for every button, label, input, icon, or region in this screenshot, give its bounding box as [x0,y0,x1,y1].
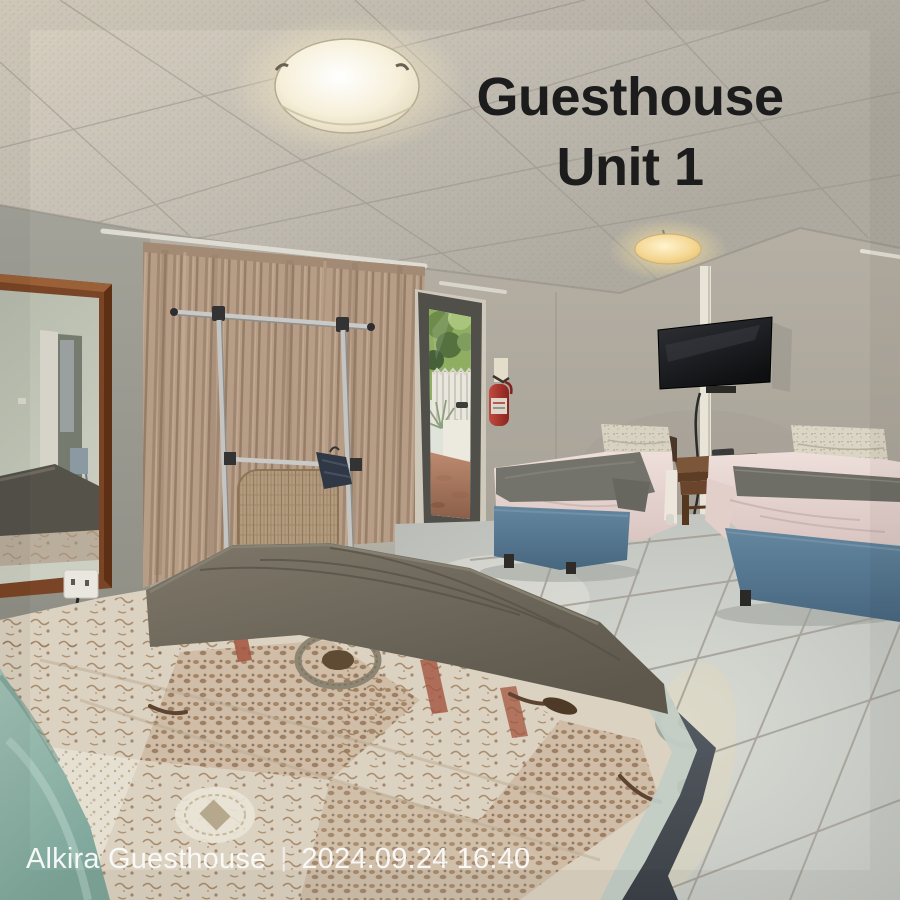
bed1-foot [566,562,576,574]
photo-watermark: Alkira Guesthouse|2024.09.24 16:40 [26,843,530,876]
tv-shadow [772,322,792,392]
watermark-timestamp: 2024.09.24 16:40 [301,843,530,875]
tv-mount [706,386,736,393]
title-line-1: Guesthouse [476,62,783,132]
guesthouse-room-photo: Guesthouse Unit 1 Alkira Guesthouse|2024… [0,0,900,900]
watermark-name: Alkira Guesthouse [26,843,266,875]
glass-door [415,289,486,534]
table-leg [682,495,689,525]
rack-joint [336,317,349,332]
title-line-2: Unit 1 [476,132,783,202]
extinguisher-label [491,398,507,414]
photo-title-overlay: Guesthouse Unit 1 [476,62,783,202]
ceiling-light-main [275,39,419,133]
rack-joint [212,306,225,321]
door-handle [456,402,468,408]
bed1-foot [504,554,514,568]
paving [429,452,470,519]
bed2-foot [740,590,751,606]
watermark-separator: | [280,842,287,873]
